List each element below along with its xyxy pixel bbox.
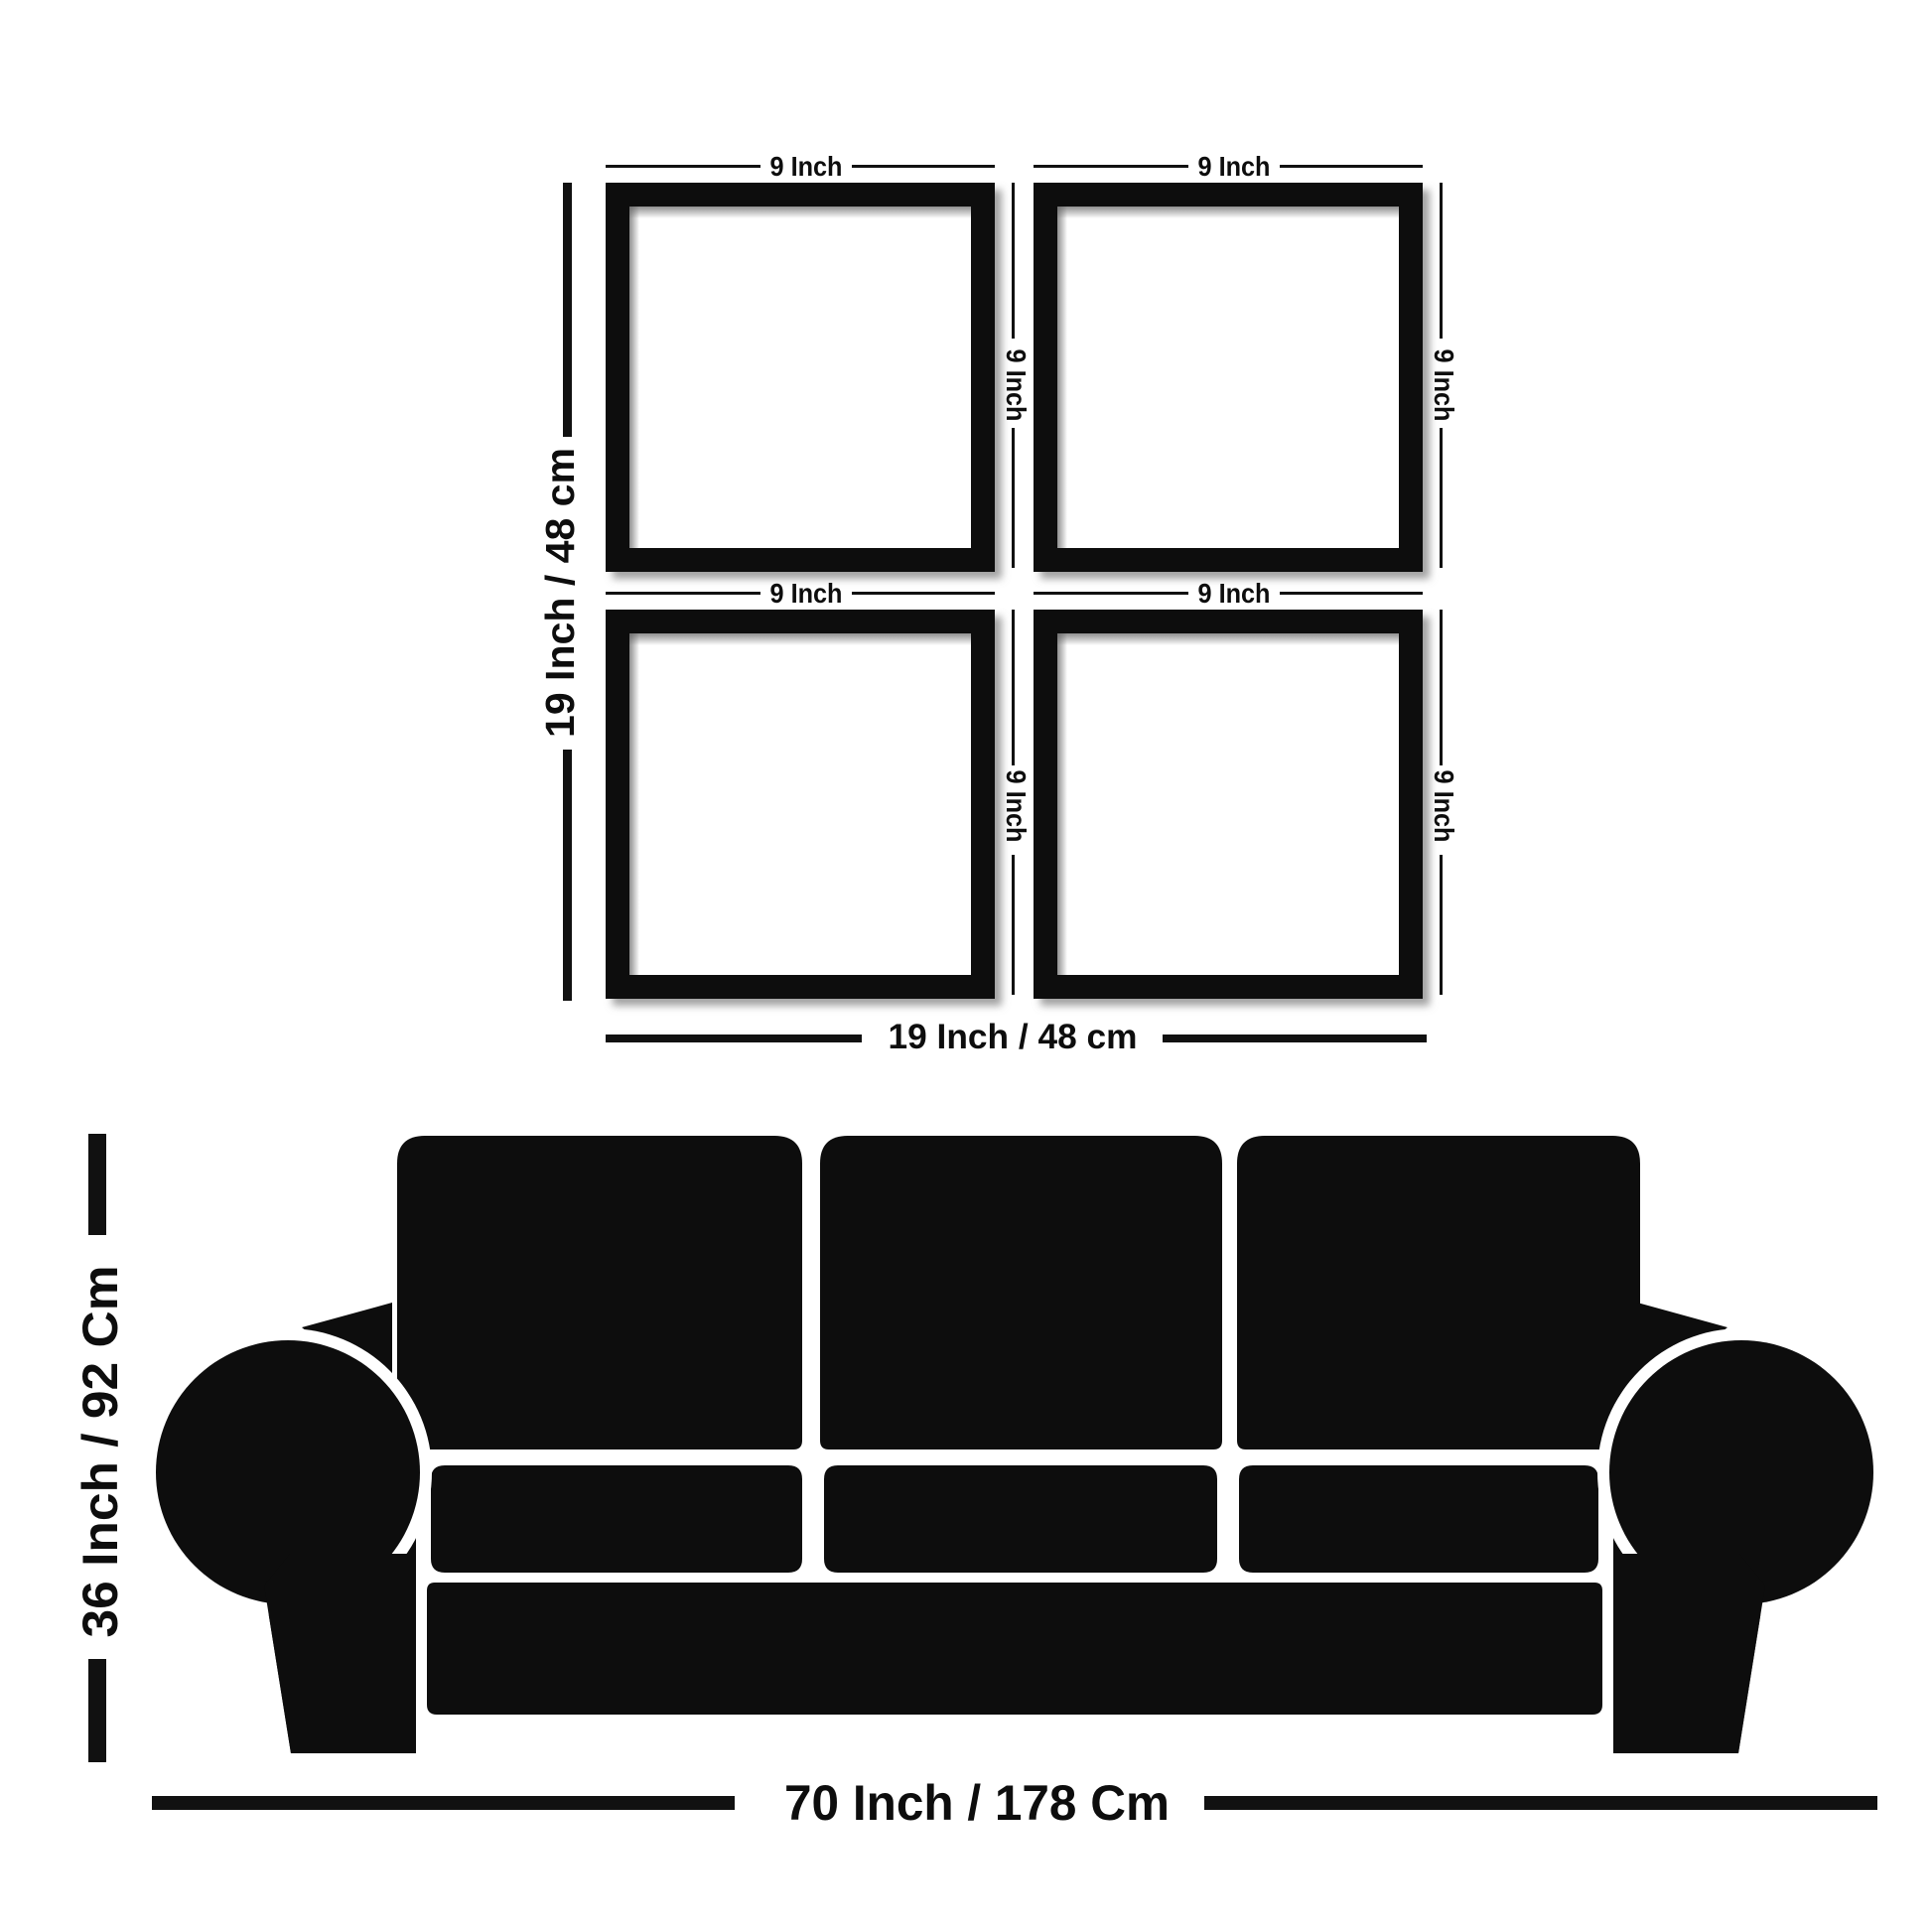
svg-text:36 Inch / 92 Cm: 36 Inch / 92 Cm <box>72 1266 128 1638</box>
svg-text:9 Inch: 9 Inch <box>1198 151 1271 182</box>
svg-text:19 Inch / 48 cm: 19 Inch / 48 cm <box>889 1018 1138 1056</box>
svg-text:9 Inch: 9 Inch <box>1001 770 1032 843</box>
svg-text:9 Inch: 9 Inch <box>1429 770 1459 843</box>
svg-text:9 Inch: 9 Inch <box>1001 349 1032 422</box>
svg-text:9 Inch: 9 Inch <box>770 151 843 182</box>
svg-text:9 Inch: 9 Inch <box>1198 578 1271 609</box>
svg-text:19 Inch / 48 cm: 19 Inch / 48 cm <box>537 448 583 738</box>
svg-text:70 Inch / 178 Cm: 70 Inch / 178 Cm <box>784 1775 1170 1831</box>
svg-text:9 Inch: 9 Inch <box>1429 349 1459 422</box>
svg-text:9 Inch: 9 Inch <box>770 578 843 609</box>
